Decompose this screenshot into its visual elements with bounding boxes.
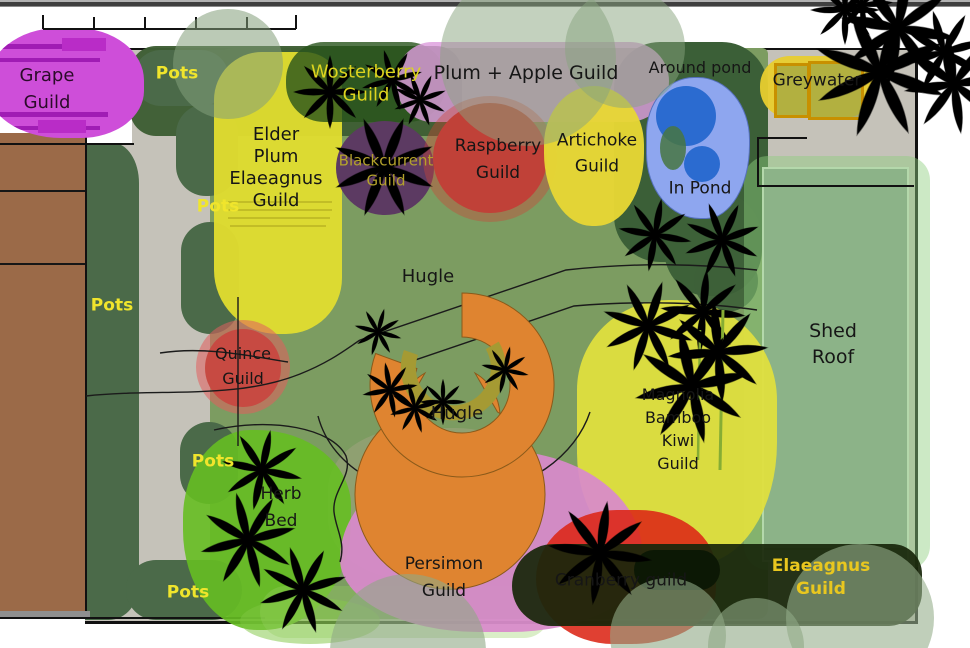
raspberry-guild-area xyxy=(433,103,547,213)
window-top-bar xyxy=(0,0,970,7)
elaeagnus-guild-area xyxy=(512,544,922,626)
vine-block xyxy=(62,38,106,51)
shed-roof-area xyxy=(762,167,909,562)
artichoke-guild-area xyxy=(544,86,644,226)
vine-row xyxy=(0,112,108,117)
bed-divider xyxy=(0,190,85,192)
pond-deep-water-2 xyxy=(684,146,720,182)
garden-plan: Grape Guild Pots Pots Pots Pots Pots Wos… xyxy=(0,0,970,648)
palm-plant-icon xyxy=(819,0,905,48)
greywater-tank-1 xyxy=(774,63,810,118)
vine-block xyxy=(38,120,86,133)
raised-beds-column xyxy=(0,133,87,612)
quince-guild-area xyxy=(205,329,281,407)
grape-guild-area xyxy=(0,28,144,138)
vine-row xyxy=(0,58,100,62)
greywater-tank-2 xyxy=(808,61,864,120)
elaeagnus-dense-patch xyxy=(634,550,720,590)
blackcurrent-guild-area xyxy=(336,121,434,215)
pond-island xyxy=(660,126,686,170)
scale-ruler xyxy=(43,15,296,29)
pots-strip-bed xyxy=(85,143,139,620)
bed-divider xyxy=(0,263,85,265)
